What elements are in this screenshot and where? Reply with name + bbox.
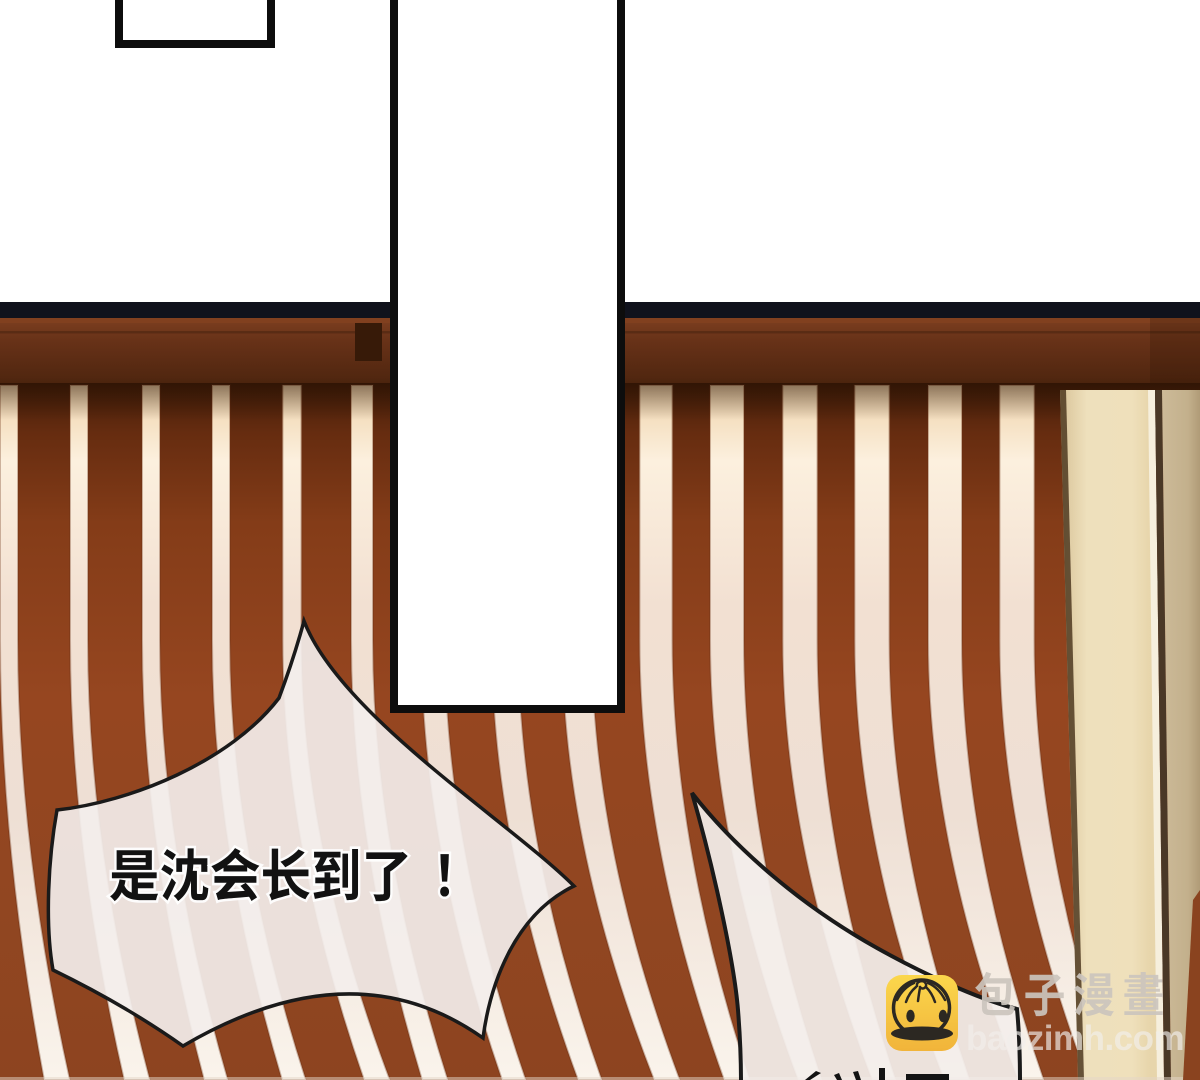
svg-text:baozimh.com: baozimh.com xyxy=(966,1019,1184,1058)
